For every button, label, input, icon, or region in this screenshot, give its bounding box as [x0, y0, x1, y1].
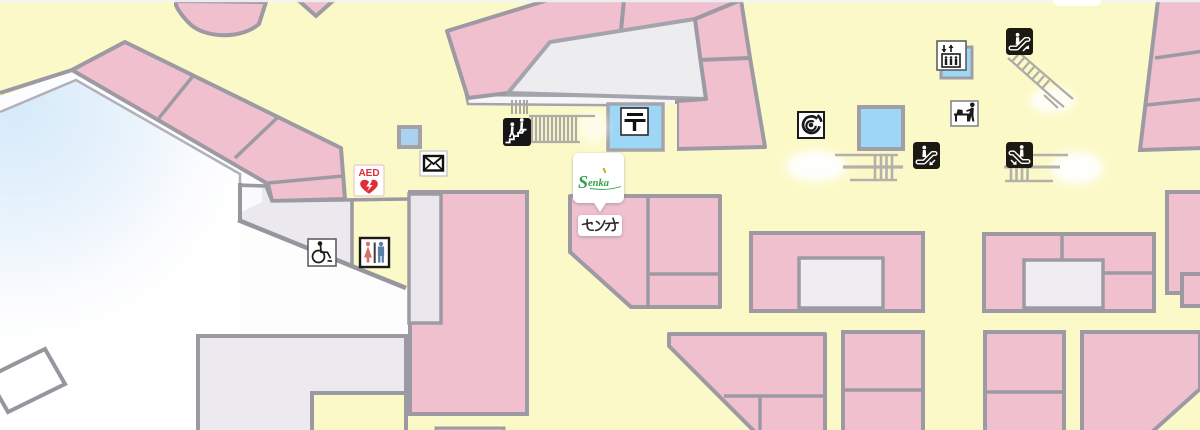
svg-text:AED: AED — [358, 168, 379, 179]
svg-text:enka: enka — [588, 178, 609, 189]
svg-text:S: S — [578, 172, 588, 192]
